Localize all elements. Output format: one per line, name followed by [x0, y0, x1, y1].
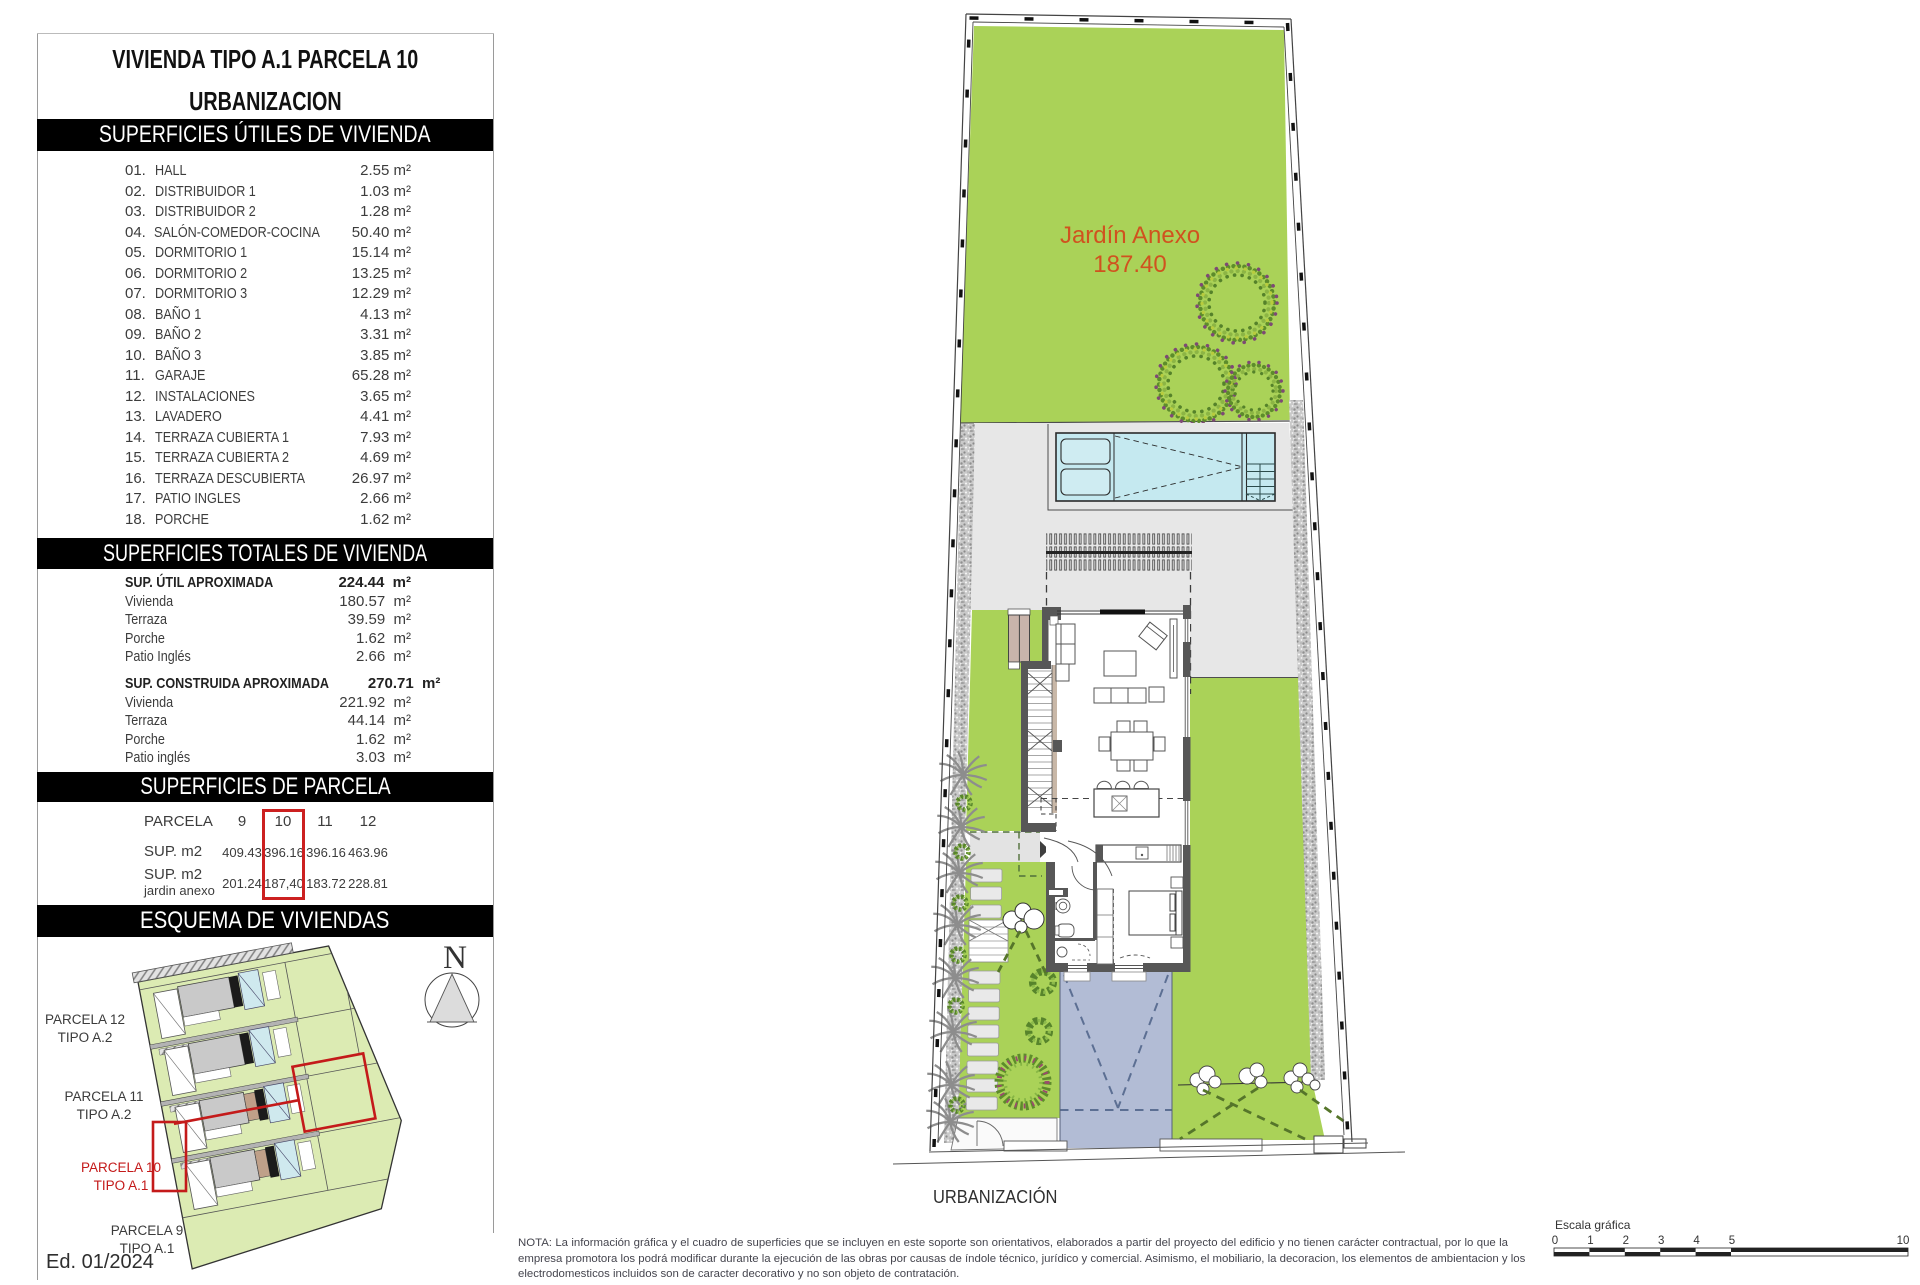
svg-text:4: 4	[1693, 1235, 1700, 1247]
svg-text:TIPO A.2: TIPO A.2	[58, 1030, 113, 1045]
svg-text:187.40: 187.40	[1093, 251, 1166, 278]
svg-text:N: N	[443, 940, 467, 976]
svg-text:1: 1	[1587, 1235, 1593, 1247]
svg-text:Jardín Anexo: Jardín Anexo	[1060, 222, 1200, 249]
svg-text:0: 0	[1552, 1235, 1558, 1247]
svg-text:Escala gráfica: Escala gráfica	[1555, 1218, 1631, 1232]
svg-text:TIPO A.1: TIPO A.1	[94, 1178, 149, 1193]
svg-text:PARCELA 9: PARCELA 9	[111, 1223, 184, 1238]
svg-text:PARCELA 11: PARCELA 11	[64, 1089, 143, 1104]
svg-text:3: 3	[1658, 1235, 1664, 1247]
svg-text:PARCELA 12: PARCELA 12	[45, 1012, 125, 1027]
svg-text:5: 5	[1729, 1235, 1735, 1247]
svg-text:PARCELA 10: PARCELA 10	[81, 1160, 161, 1175]
svg-text:2: 2	[1623, 1235, 1629, 1247]
svg-text:TIPO A.2: TIPO A.2	[77, 1107, 132, 1122]
svg-text:10: 10	[1897, 1235, 1910, 1247]
